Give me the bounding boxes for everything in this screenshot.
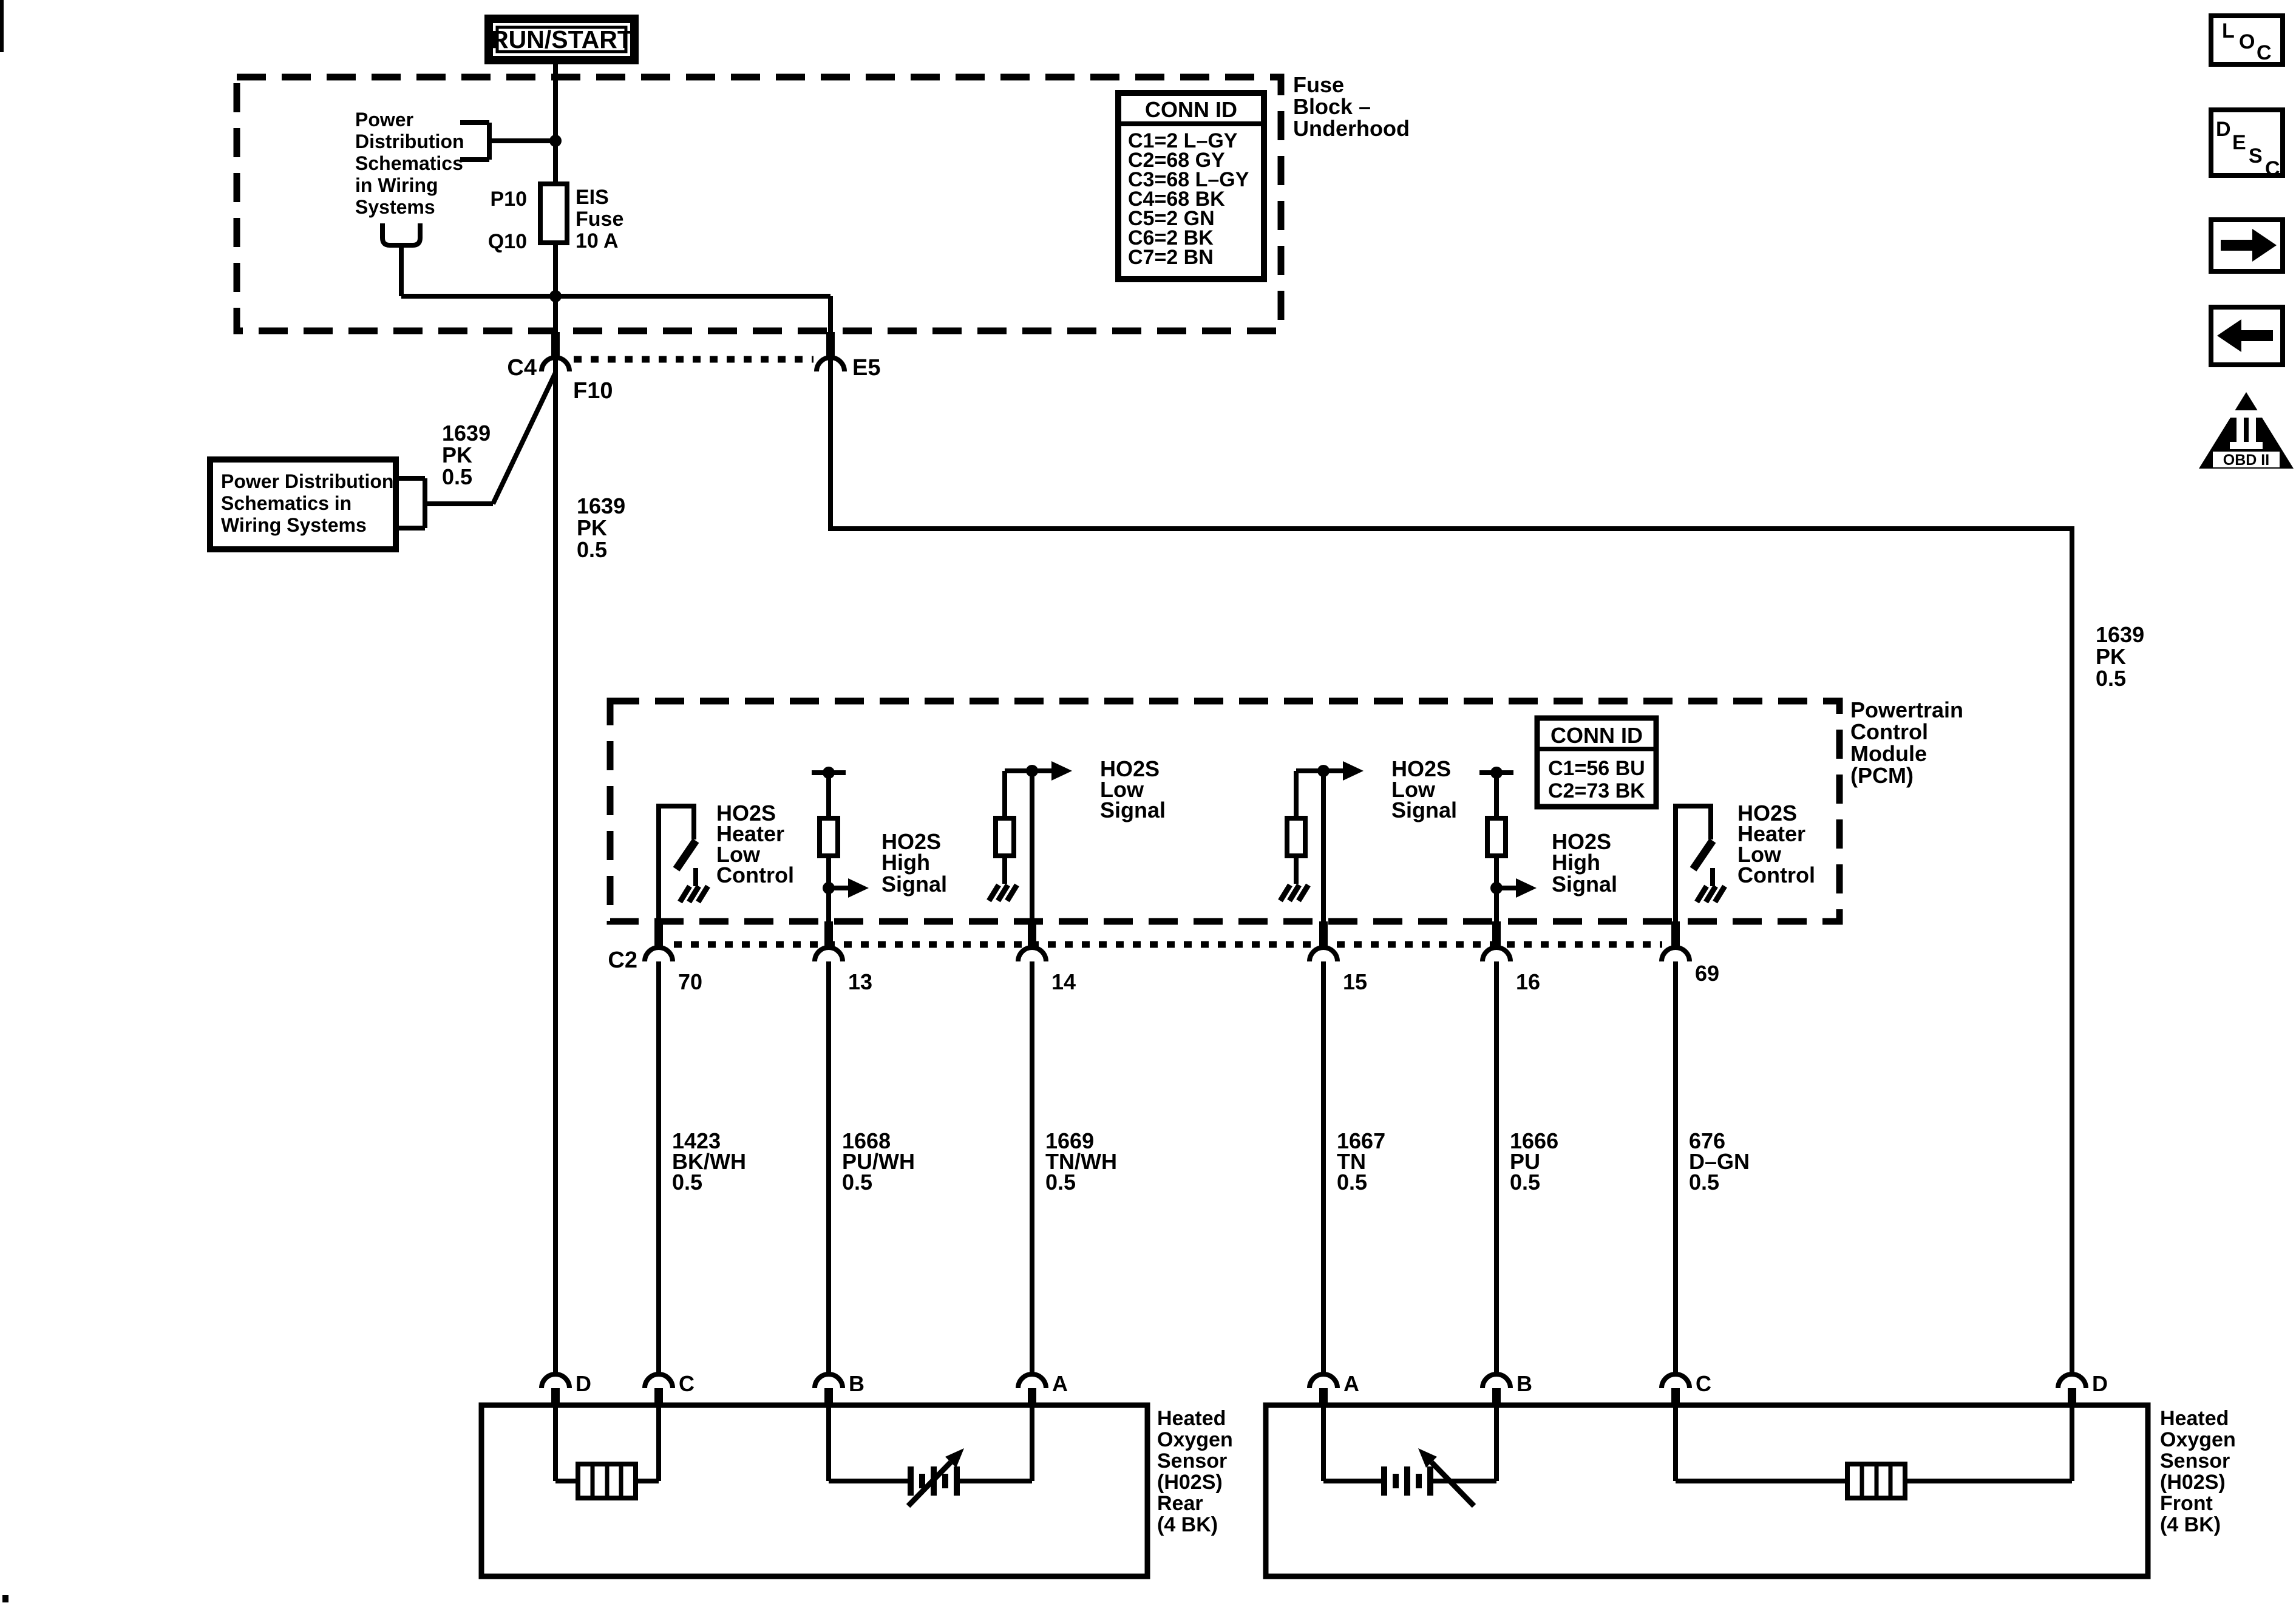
- circuit-number: 1639: [442, 421, 491, 446]
- pcm-ho2s-low-signal-right: HO2S Low Signal: [1280, 756, 1457, 921]
- pcm-title: Powertrain Control Module (PCM): [1850, 697, 1963, 788]
- ho2s-rear-box: Heated Oxygen Sensor (H02S) Rear (4 BK): [481, 1405, 1233, 1576]
- fuse-eis-10a: [540, 184, 567, 243]
- desc-letter: D: [2216, 118, 2231, 141]
- sensor-pin-letter: A: [1052, 1371, 1068, 1396]
- wire-gauge: 0.5: [1337, 1170, 1367, 1195]
- title-line: Control: [1850, 719, 1928, 744]
- resistor-icon: [996, 818, 1014, 856]
- wire-gauge: 0.5: [842, 1170, 872, 1195]
- sensor-pin-letter: A: [1343, 1371, 1359, 1396]
- power-distribution-ref-box: Power Distribution Schematics in Wiring …: [210, 459, 396, 549]
- resistor-icon: [1487, 818, 1506, 856]
- pcm-connector-row: C2 70 13 14 15 16 69: [608, 921, 1719, 994]
- ref-line: Power: [355, 109, 413, 131]
- signal-label-line: High: [881, 850, 930, 875]
- sensor-title-line: (4 BK): [1157, 1513, 1218, 1536]
- sensor-title-line: (H02S): [2160, 1471, 2226, 1494]
- sensor-title-line: Oxygen: [1157, 1428, 1233, 1451]
- power-distribution-ref-top: Power Distribution Schematics in Wiring …: [355, 109, 464, 218]
- pcm-pin-number: 13: [848, 969, 872, 994]
- pcm-ho2s-heater-low-control-switch-left: HO2S Heater Low Control: [659, 801, 794, 921]
- sensor-title-line: (H02S): [1157, 1471, 1223, 1494]
- signal-label-line: Control: [716, 863, 794, 887]
- signal-arrow-icon: [1343, 761, 1364, 781]
- loc-button[interactable]: L O C: [2211, 16, 2283, 64]
- pcm-ho2s-low-signal-left: HO2S Low Signal: [989, 756, 1166, 921]
- conn-id-title: CONN ID: [1145, 97, 1237, 122]
- conn-id-row: C1=56 BU: [1548, 757, 1645, 780]
- fuse-terminal-p10: P10: [491, 188, 528, 211]
- sensor-title-line: Heated: [2160, 1407, 2229, 1430]
- circuit-number: 1639: [2096, 622, 2144, 647]
- forward-button[interactable]: [2211, 220, 2283, 271]
- title-line: Module: [1850, 741, 1927, 766]
- run-start-label: RUN/START: [491, 25, 633, 53]
- ref-box-line: Power Distribution: [221, 470, 393, 492]
- title-line: Underhood: [1293, 116, 1410, 141]
- wire-label-1639-a: 1639 PK 0.5: [442, 421, 491, 489]
- connector-f10-label: F10: [573, 378, 613, 404]
- obd2-label: OBD II: [2223, 452, 2269, 469]
- schematic-canvas: RUN/START Power Distribution Schematics …: [0, 0, 2296, 1617]
- desc-letter: S: [2249, 144, 2263, 168]
- wire-gauge: 0.5: [1045, 1170, 1076, 1195]
- sensor-pin-letter: D: [2092, 1371, 2108, 1396]
- pcm-pin-number: 14: [1051, 969, 1076, 994]
- ref-box-line: Schematics in: [221, 492, 352, 514]
- wire-gauge: 0.5: [1510, 1170, 1540, 1195]
- title-line: (PCM): [1850, 763, 1914, 788]
- loc-letter: L: [2222, 19, 2235, 42]
- page-edge-artifact: [0, 0, 4, 52]
- signal-arrow-icon: [848, 878, 869, 898]
- conn-id-row: C2=73 BK: [1548, 779, 1645, 802]
- pcm-connector-c2-label: C2: [608, 947, 637, 973]
- wire-gauge: 0.5: [1689, 1170, 1719, 1195]
- sensor-title-line: Sensor: [2160, 1449, 2230, 1473]
- ground-icon: [1697, 886, 1725, 902]
- conn-id-table-pcm: CONN ID C1=56 BU C2=73 BK: [1537, 718, 1656, 807]
- pcm-pin-number: 69: [1695, 961, 1719, 986]
- signal-label-line: Signal: [881, 872, 947, 897]
- signal-label-line: Signal: [1552, 872, 1617, 897]
- sensor-pin-letter: D: [576, 1371, 591, 1396]
- pcm-pin-number: 16: [1516, 969, 1540, 994]
- wire-gauge: 0.5: [577, 537, 607, 562]
- sensor-pin-letter: B: [1517, 1371, 1532, 1396]
- title-line: Powertrain: [1850, 697, 1963, 722]
- signal-arrow-icon: [1516, 878, 1537, 898]
- fuse-desc-line: EIS: [576, 186, 609, 209]
- wiring-diagram-page: { "ignition": { "label": "RUN/START" }, …: [0, 0, 2296, 1617]
- ref-line: Systems: [355, 196, 435, 218]
- ref-line: Schematics: [355, 152, 463, 174]
- desc-letter: E: [2232, 131, 2246, 154]
- signal-label-line: High: [1552, 850, 1600, 875]
- resistor-icon: [1287, 818, 1305, 856]
- ho2s-front-box: Heated Oxygen Sensor (H02S) Front (4 BK): [1266, 1405, 2236, 1576]
- loc-letter: C: [2257, 41, 2272, 64]
- obd2-indicator: OBD II: [2199, 392, 2294, 469]
- wire-gauge: 0.5: [672, 1170, 702, 1195]
- ref-line: in Wiring: [355, 174, 438, 196]
- wire-label-1668: 1668 PU/WH 0.5: [842, 1128, 915, 1195]
- conn-id-table-fuse-block: CONN ID C1=2 L–GY C2=68 GY C3=68 L–GY C4…: [1118, 93, 1264, 279]
- sensor-title-line: Front: [2160, 1492, 2213, 1515]
- pcm-ho2s-heater-low-control-switch-right: HO2S Heater Low Control: [1676, 801, 1815, 921]
- sensor-title-line: Rear: [1157, 1492, 1203, 1515]
- wire-label-1666: 1666 PU 0.5: [1510, 1128, 1558, 1195]
- run-start-box: RUN/START: [484, 15, 639, 64]
- ground-icon: [1280, 885, 1308, 901]
- wire-gauge: 0.5: [2096, 666, 2126, 691]
- signal-label-line: Control: [1737, 863, 1815, 887]
- signal-label-line: Signal: [1100, 798, 1166, 822]
- pcm-pin-number: 70: [678, 969, 702, 994]
- circuit-number: 1639: [577, 493, 625, 518]
- wire-color: PK: [577, 515, 607, 540]
- wire-label-1639-b: 1639 PK 0.5: [577, 493, 625, 562]
- wire-label-676: 676 D–GN 0.5: [1689, 1128, 1750, 1195]
- ref-box-line: Wiring Systems: [221, 514, 367, 536]
- sensor-title-line: Sensor: [1157, 1449, 1227, 1473]
- fuse-terminal-q10: Q10: [488, 230, 527, 253]
- ground-icon: [989, 885, 1017, 901]
- pcm-ho2s-high-signal-left: HO2S High Signal: [812, 767, 947, 921]
- wire-label-1423: 1423 BK/WH 0.5: [672, 1128, 746, 1195]
- ground-icon: [680, 886, 708, 902]
- wire-label-1639-c: 1639 PK 0.5: [2096, 622, 2144, 691]
- sensor-title-line: Heated: [1157, 1407, 1226, 1430]
- sensor-title-line: Oxygen: [2160, 1428, 2236, 1451]
- conn-id-title: CONN ID: [1550, 723, 1643, 748]
- loc-letter: O: [2239, 30, 2255, 53]
- sensor-title-line: (4 BK): [2160, 1513, 2221, 1536]
- signal-label-line: Signal: [1391, 798, 1457, 822]
- fuse-block-title: Fuse Block – Underhood: [1293, 72, 1410, 141]
- wire-label-1669: 1669 TN/WH 0.5: [1045, 1128, 1117, 1195]
- connector-c4-label: C4: [507, 355, 537, 381]
- title-line: Block –: [1293, 94, 1371, 119]
- sensor-pin-letter: B: [849, 1371, 864, 1396]
- sensor-pin-letter: C: [1696, 1371, 1711, 1396]
- title-line: Fuse: [1293, 72, 1344, 97]
- wire-color: PK: [442, 442, 472, 467]
- fuse-desc-line: Fuse: [576, 208, 623, 231]
- conn-id-row: C7=2 BN: [1128, 246, 1214, 269]
- fuse-block-connectors: C4 F10 E5: [507, 332, 880, 404]
- resistor-icon: [820, 818, 838, 856]
- wire-gauge: 0.5: [442, 464, 472, 489]
- desc-letter: C: [2265, 157, 2280, 180]
- connector-e5-label: E5: [852, 355, 880, 381]
- wire-label-1667: 1667 TN 0.5: [1337, 1128, 1385, 1195]
- fuse-desc-line: 10 A: [576, 229, 619, 253]
- sensor-pin-letter: C: [679, 1371, 695, 1396]
- page-dot-artifact: [2, 1595, 8, 1602]
- pcm-pin-number: 15: [1343, 969, 1367, 994]
- desc-button[interactable]: D E S C: [2211, 110, 2283, 180]
- ref-line: Distribution: [355, 131, 464, 152]
- wire-color: PK: [2096, 644, 2126, 669]
- back-button[interactable]: [2211, 307, 2283, 365]
- signal-arrow-icon: [1051, 761, 1072, 781]
